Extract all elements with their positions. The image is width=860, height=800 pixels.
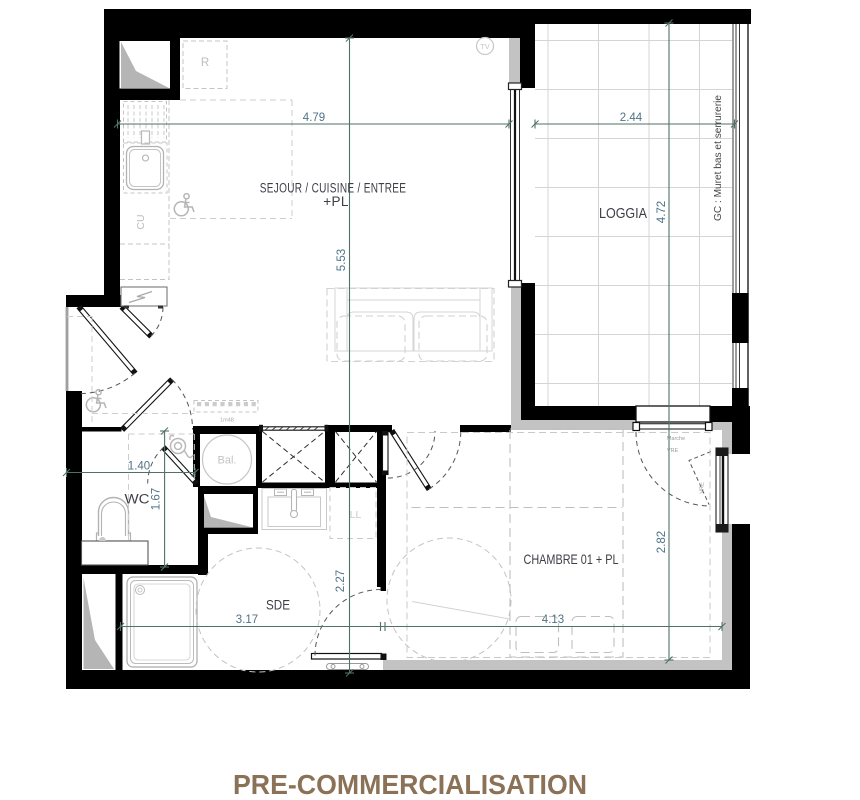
svg-text:VRE: VRE <box>667 448 679 454</box>
svg-text:TV: TV <box>480 42 490 51</box>
svg-text:4.13: 4.13 <box>542 614 564 626</box>
svg-text:WC: WC <box>125 492 150 507</box>
svg-text:3.17: 3.17 <box>236 614 258 626</box>
svg-text:LOGGIA: LOGGIA <box>599 206 647 222</box>
svg-text:SDE: SDE <box>266 598 290 613</box>
svg-text:1m48: 1m48 <box>220 418 234 424</box>
svg-text:5.53: 5.53 <box>336 249 348 271</box>
svg-text:1.67: 1.67 <box>151 488 163 510</box>
svg-text:PRE-COMMERCIALISATION: PRE-COMMERCIALISATION <box>233 769 587 800</box>
svg-text:GC : Muret bas et serrurerie: GC : Muret bas et serrurerie <box>713 95 724 221</box>
svg-text:Marche: Marche <box>667 436 685 442</box>
svg-text:+PL: +PL <box>323 194 349 209</box>
svg-text:2.44: 2.44 <box>620 112 643 124</box>
svg-text:R: R <box>201 57 209 69</box>
svg-text:2.27: 2.27 <box>335 570 347 592</box>
svg-text:CU: CU <box>135 214 147 229</box>
svg-text:LL: LL <box>350 509 362 521</box>
svg-text:CHAMBRE 01 + PL: CHAMBRE 01 + PL <box>524 551 619 567</box>
svg-text:VRE: VRE <box>700 482 706 494</box>
svg-text:4.72: 4.72 <box>656 201 668 223</box>
svg-text:1.40: 1.40 <box>128 461 150 473</box>
svg-text:Bal.: Bal. <box>218 455 237 467</box>
svg-text:2.82: 2.82 <box>656 531 668 553</box>
svg-text:4.79: 4.79 <box>303 112 325 124</box>
